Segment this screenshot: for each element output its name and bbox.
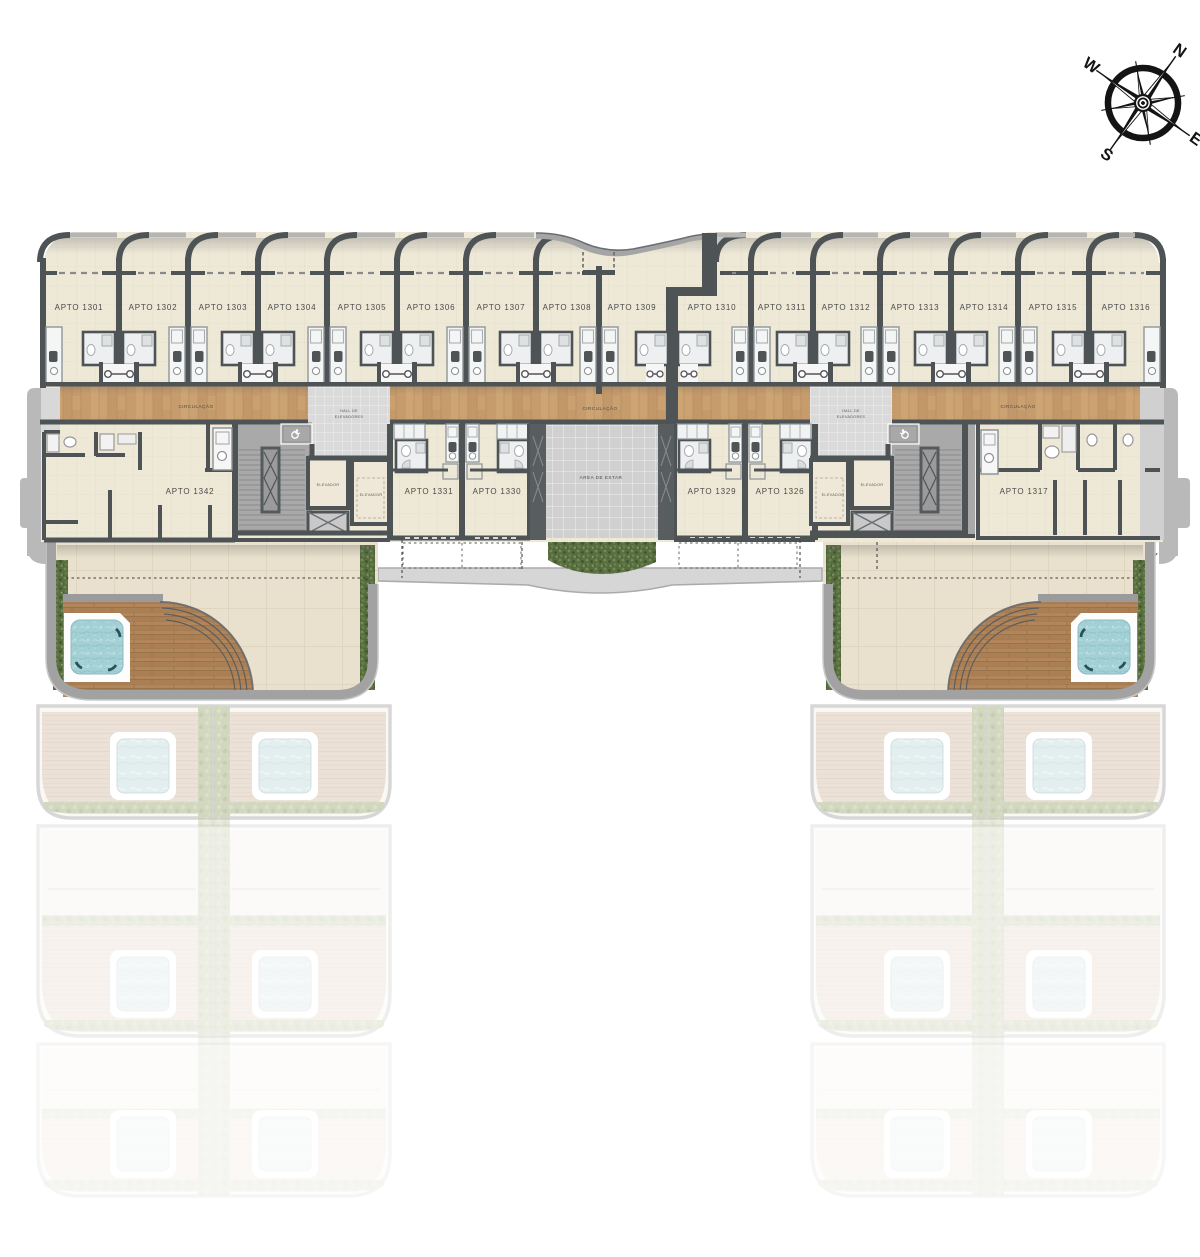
svg-text:APTO 1342: APTO 1342 xyxy=(166,487,215,496)
svg-text:APTO 1309: APTO 1309 xyxy=(608,303,657,312)
svg-text:APTO 1330: APTO 1330 xyxy=(473,487,522,496)
svg-text:ELEVADORES: ELEVADORES xyxy=(335,415,364,419)
svg-text:APTO 1313: APTO 1313 xyxy=(891,303,940,312)
svg-text:APTO 1312: APTO 1312 xyxy=(822,303,871,312)
svg-text:ELEVADORES: ELEVADORES xyxy=(837,415,866,419)
svg-text:APTO 1303: APTO 1303 xyxy=(199,303,248,312)
svg-text:APTO 1308: APTO 1308 xyxy=(543,303,592,312)
svg-text:CIRCULAÇÃO: CIRCULAÇÃO xyxy=(1000,403,1035,409)
svg-text:APTO 1302: APTO 1302 xyxy=(129,303,178,312)
svg-text:APTO 1301: APTO 1301 xyxy=(55,303,104,312)
svg-text:CIRCULAÇÃO: CIRCULAÇÃO xyxy=(582,405,617,411)
svg-text:APTO 1329: APTO 1329 xyxy=(688,487,737,496)
svg-text:APTO 1315: APTO 1315 xyxy=(1029,303,1078,312)
svg-text:APTO 1310: APTO 1310 xyxy=(688,303,737,312)
svg-text:N: N xyxy=(1169,40,1189,62)
svg-text:HALL DE: HALL DE xyxy=(842,409,860,413)
svg-text:APTO 1331: APTO 1331 xyxy=(405,487,454,496)
svg-text:ELEVADOR: ELEVADOR xyxy=(822,493,845,497)
svg-text:APTO 1314: APTO 1314 xyxy=(960,303,1009,312)
svg-text:ELEVADOR: ELEVADOR xyxy=(360,493,383,497)
svg-text:APTO 1316: APTO 1316 xyxy=(1102,303,1151,312)
svg-text:HALL DE: HALL DE xyxy=(340,409,358,413)
svg-text:APTO 1305: APTO 1305 xyxy=(338,303,387,312)
svg-text:APTO 1307: APTO 1307 xyxy=(477,303,526,312)
svg-text:AREA DE ESTAR: AREA DE ESTAR xyxy=(580,475,623,480)
svg-text:APTO 1317: APTO 1317 xyxy=(1000,487,1049,496)
svg-text:APTO 1306: APTO 1306 xyxy=(407,303,456,312)
svg-text:ELEVADOR: ELEVADOR xyxy=(861,483,884,487)
svg-text:APTO 1326: APTO 1326 xyxy=(756,487,805,496)
svg-text:ELEVADOR: ELEVADOR xyxy=(317,483,340,487)
svg-text:E: E xyxy=(1186,129,1200,150)
svg-text:S: S xyxy=(1097,144,1116,165)
svg-text:APTO 1311: APTO 1311 xyxy=(758,303,806,312)
svg-text:CIRCULAÇÃO: CIRCULAÇÃO xyxy=(178,403,213,409)
svg-text:W: W xyxy=(1079,54,1102,78)
svg-text:APTO 1304: APTO 1304 xyxy=(268,303,317,312)
